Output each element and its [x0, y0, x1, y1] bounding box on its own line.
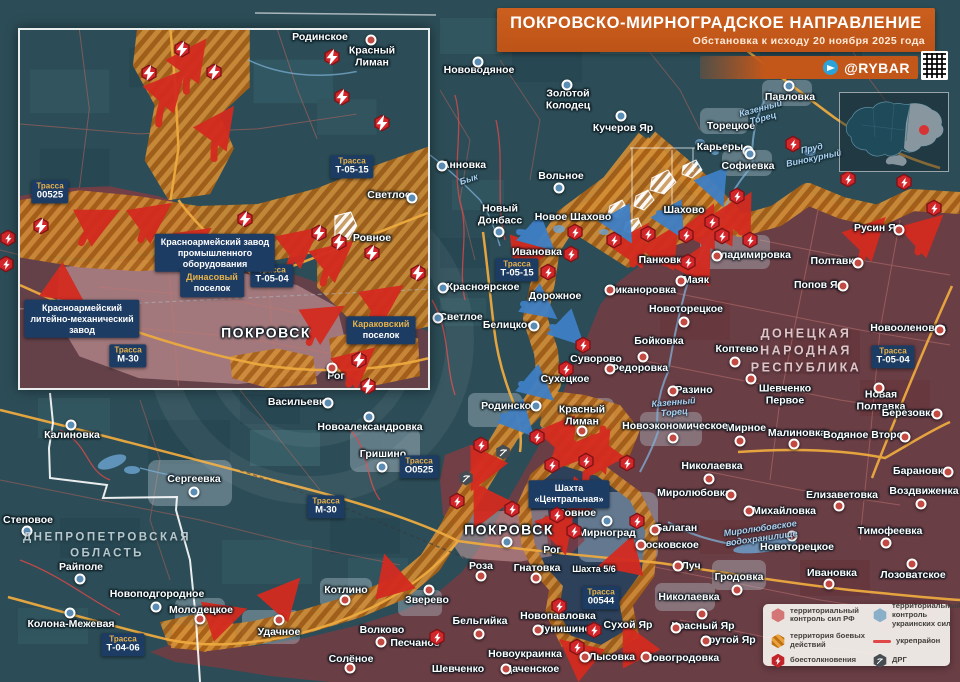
place-label: Даченское — [505, 664, 560, 676]
road-badge: Трасса00544 — [582, 586, 619, 609]
clash-icon — [324, 49, 341, 66]
city-dot — [636, 540, 647, 551]
legend-label: ДРГ — [892, 656, 907, 665]
city-dot — [531, 573, 542, 584]
city-dot — [66, 420, 77, 431]
clash-icon — [206, 64, 223, 81]
place-label: Волково — [360, 625, 405, 637]
road-badge: ТрассаТ-05-04 — [871, 345, 914, 368]
place-label: Воздвиженка — [889, 486, 958, 498]
clash-icon — [896, 174, 913, 191]
clash-icon — [640, 226, 657, 243]
legend-label: территориальный контроль сил РФ — [790, 607, 867, 624]
place-label: ПОКРОВСК — [464, 522, 554, 537]
city-dot — [189, 487, 200, 498]
callout-label: Шахта«Центральная» — [529, 480, 610, 508]
place-label: Кучеров Яр — [593, 123, 653, 135]
clash-icon — [374, 115, 391, 132]
legend-label: территория боевых действий — [790, 632, 867, 649]
place-label: Лысовка — [589, 652, 635, 664]
city-dot — [554, 183, 565, 194]
city-dot — [433, 313, 444, 324]
place-label: Владимировка — [713, 250, 791, 262]
legend-swatch-ua-icon — [873, 608, 887, 622]
clash-icon — [141, 65, 158, 82]
legend-swatch-clash-icon — [771, 654, 785, 668]
title-bar: ПОКРОВСКО-МИРНОГРАДСКОЕ НАПРАВЛЕНИЕ Обст… — [497, 8, 935, 52]
city-dot — [744, 506, 755, 517]
city-dot — [824, 579, 835, 590]
place-label: Березовка — [882, 408, 937, 420]
place-label: Тимофеевка — [858, 526, 923, 538]
place-label: Сергеевка — [167, 474, 220, 486]
clash-icon — [311, 225, 328, 242]
clash-icon — [364, 245, 381, 262]
city-dot — [366, 35, 377, 46]
place-label: Федоровка — [610, 363, 668, 375]
city-dot — [364, 412, 375, 423]
clash-icon — [926, 200, 943, 217]
place-label: Удачное — [258, 627, 301, 639]
city-dot — [502, 537, 513, 548]
city-dot — [376, 637, 387, 648]
legend-label: укрепрайон — [896, 637, 940, 646]
city-dot — [834, 501, 845, 512]
clash-icon — [563, 246, 580, 263]
legend-swatch-drg-icon — [873, 654, 887, 668]
city-dot — [474, 629, 485, 640]
clash-icon — [529, 429, 546, 446]
clash-icon — [551, 598, 568, 615]
city-dot — [679, 317, 690, 328]
war-map-canvas: НововодяноеЗолотой КолодецКучеров ЯрПавл… — [0, 0, 960, 682]
city-dot — [838, 281, 849, 292]
clash-icon — [714, 228, 731, 245]
place-label: Карьеры — [697, 142, 743, 154]
place-label: Новогродовка — [645, 653, 719, 665]
city-dot — [529, 321, 540, 332]
drg-icon — [496, 445, 511, 460]
clash-icon — [449, 493, 466, 510]
drg-icon — [459, 471, 474, 486]
place-label: Новое Шахово — [535, 212, 612, 224]
conflict-area-dot — [919, 125, 929, 135]
city-dot — [274, 615, 285, 626]
road-badge: ТрассаТ-05-15 — [330, 155, 373, 178]
city-dot — [602, 516, 613, 527]
place-label: Софиевка — [721, 161, 774, 173]
clash-icon — [578, 453, 595, 470]
road-badge: ТрассаМ-30 — [307, 495, 344, 518]
callout-label: Красноармейский заводпромышленногооборуд… — [155, 234, 275, 272]
city-dot — [745, 149, 756, 160]
place-label: Золотой Колодец — [546, 88, 590, 111]
inset-map-pokrovsk: РодинскоеКрасный ЛиманСветлоеРовноеПОКРО… — [18, 28, 430, 390]
city-dot — [345, 663, 356, 674]
clash-icon — [619, 455, 636, 472]
place-label: Светлое — [367, 190, 410, 202]
place-label: Родинское — [481, 401, 537, 413]
place-label: Колона-Межевая — [27, 619, 114, 631]
place-label: Дорожное — [529, 291, 582, 303]
legend-item-rf: территориальный контроль сил РФ — [771, 602, 867, 628]
city-dot — [712, 251, 723, 262]
clash-icon — [331, 234, 348, 251]
region-label: ДНЕПРОПЕТРОВСКАЯ ОБЛАСТЬ — [23, 530, 191, 561]
city-dot — [641, 652, 652, 663]
legend-swatch-fort-icon — [873, 640, 891, 643]
city-dot — [732, 585, 743, 596]
clash-icon — [429, 629, 446, 646]
city-dot — [616, 111, 627, 122]
place-label: Михайловка — [752, 506, 816, 518]
place-label: Красный Лиман — [559, 404, 605, 427]
qr-code — [921, 51, 948, 80]
place-label: Новоподгородное — [110, 589, 205, 601]
place-label: Зверево — [405, 595, 449, 607]
clash-icon — [704, 214, 721, 231]
place-label: Анновка — [442, 160, 486, 172]
city-dot — [476, 571, 487, 582]
clash-icon — [729, 188, 746, 205]
clash-icon — [174, 41, 191, 58]
legend-item-ua: территориальный контроль украинских сил — [873, 602, 960, 628]
city-dot — [494, 227, 505, 238]
city-dot — [726, 490, 737, 501]
telegram-icon — [823, 60, 838, 75]
road-badge: ТрассаО0525 — [400, 455, 439, 478]
callout-label: Динасовыйпоселок — [180, 269, 244, 297]
place-label: Гродовка — [715, 572, 764, 584]
river-label: Миролюбовское водохранилище — [723, 519, 799, 549]
city-dot — [735, 436, 746, 447]
city-dot — [916, 499, 927, 510]
city-dot — [676, 276, 687, 287]
city-dot — [730, 357, 741, 368]
legend-item-fort: укрепрайон — [873, 632, 960, 649]
map-title: ПОКРОВСКО-МИРНОГРАДСКОЕ НАПРАВЛЕНИЕ — [507, 14, 925, 33]
clash-icon — [0, 256, 15, 273]
city-dot — [874, 383, 885, 394]
river-label: Бык — [459, 172, 480, 187]
city-dot — [697, 609, 708, 620]
map-subtitle: Обстановка к исходу 20 ноября 2025 года — [507, 35, 925, 47]
city-dot — [65, 608, 76, 619]
road-badge: ТрассаМ-30 — [109, 344, 146, 367]
callout-label: Красноармейскийлитейно-механическийзавод — [24, 300, 139, 338]
city-dot — [789, 439, 800, 450]
city-dot — [605, 364, 616, 375]
road-badge: Трасса00525 — [31, 180, 68, 203]
place-label: Новый Донбасс — [478, 203, 522, 226]
city-dot — [650, 525, 661, 536]
place-label: Барановка — [893, 466, 949, 478]
legend-label: территориальный контроль украинских сил — [892, 602, 960, 628]
place-label: Ивановка — [807, 568, 857, 580]
road-badge: ТрассаТ-05-15 — [495, 258, 538, 281]
city-dot — [437, 161, 448, 172]
city-dot — [195, 614, 206, 625]
city-dot — [671, 623, 682, 634]
city-dot — [151, 602, 162, 613]
city-dot — [935, 325, 946, 336]
place-label: ПОКРОВСК — [221, 325, 311, 340]
place-label: Чунишино — [537, 624, 591, 636]
clash-icon — [567, 224, 584, 241]
place-label: Красный Лиман — [349, 45, 395, 68]
place-label: Бойковка — [634, 336, 684, 348]
city-dot — [638, 352, 649, 363]
place-label: Шевченко — [432, 664, 484, 676]
place-label: Маяк — [683, 275, 709, 287]
region-label: ДОНЕЦКАЯ НАРОДНАЯ РЕСПУБЛИКА — [751, 326, 862, 377]
place-label: Никаноровка — [608, 285, 676, 297]
city-dot — [673, 561, 684, 572]
river-label: Казенный Торец — [651, 396, 697, 420]
place-label: Рог — [543, 545, 561, 557]
place-label: Балаган — [655, 523, 697, 535]
place-label: Ровное — [353, 233, 391, 245]
place-label: Новоторецкое — [649, 304, 723, 316]
city-dot — [531, 401, 542, 412]
place-label: Панковка — [639, 255, 688, 267]
place-label: Малиновка — [768, 428, 826, 440]
place-label: Бельгийка — [453, 616, 508, 628]
place-label: Калиновка — [44, 430, 100, 442]
clash-icon — [678, 227, 695, 244]
place-label: Райполе — [59, 562, 103, 574]
place-label: Мирноград — [578, 528, 636, 540]
place-label: Водяное Второе — [823, 430, 909, 442]
legend: территориальный контроль сил РФтерритори… — [763, 604, 950, 666]
clash-icon — [544, 457, 561, 474]
clash-icon — [549, 507, 566, 524]
place-label: Николаевка — [681, 461, 742, 473]
place-label: Новоторецкое — [760, 542, 834, 554]
legend-label: боестолкновения — [790, 656, 856, 665]
city-dot — [327, 363, 338, 374]
city-dot — [605, 285, 616, 296]
clash-icon — [566, 523, 583, 540]
city-dot — [704, 474, 715, 485]
place-label: Вольное — [538, 171, 583, 183]
place-label: Новоалександровка — [317, 422, 422, 434]
place-label: Шахово — [663, 205, 704, 217]
place-label: Луч — [681, 561, 700, 573]
callout-label: Караковскийпоселок — [347, 316, 416, 344]
city-dot — [853, 258, 864, 269]
place-label: Ивановка — [512, 247, 562, 259]
city-dot — [668, 433, 679, 444]
city-dot — [377, 462, 388, 473]
brand-bar: @RYBAR — [700, 56, 918, 79]
clash-icon — [473, 437, 490, 454]
place-label: Красноярское — [447, 282, 520, 294]
city-dot — [424, 585, 435, 596]
place-label: Новоукраинка — [488, 649, 562, 661]
clash-icon — [558, 361, 575, 378]
legend-swatch-combat-icon — [771, 634, 785, 648]
clash-icon — [586, 622, 603, 639]
place-label: Светлое — [439, 312, 482, 324]
city-dot — [533, 625, 544, 636]
place-label: Шахта 5/6 — [572, 565, 615, 575]
place-label: Елизаветовка — [806, 490, 878, 502]
place-label: Шевченко Первое — [759, 383, 811, 406]
inset-labels-layer: РодинскоеКрасный ЛиманСветлоеРовноеПОКРО… — [20, 30, 428, 388]
place-label: Родинское — [292, 32, 348, 44]
clash-icon — [410, 265, 427, 282]
city-dot — [894, 225, 905, 236]
river-label: Казенный Торец — [738, 99, 786, 130]
ukraine-minimap — [839, 92, 949, 172]
city-dot — [900, 432, 911, 443]
city-dot — [784, 81, 795, 92]
clash-icon — [606, 232, 623, 249]
clash-icon — [742, 232, 759, 249]
legend-item-drg: ДРГ — [873, 654, 960, 668]
legend-item-combat: территория боевых действий — [771, 632, 867, 649]
place-label: Миролюбовка — [657, 488, 731, 500]
legend-item-clash: боестолкновения — [771, 654, 867, 668]
city-dot — [668, 386, 679, 397]
place-label: Сухой Яр — [604, 620, 653, 632]
city-dot — [881, 538, 892, 549]
brand-name: @RYBAR — [844, 60, 910, 76]
clash-icon — [334, 89, 351, 106]
city-dot — [562, 80, 573, 91]
city-dot — [580, 652, 591, 663]
clash-icon — [680, 254, 697, 271]
city-dot — [932, 409, 943, 420]
place-label: Васильевка — [268, 397, 330, 409]
city-dot — [473, 57, 484, 68]
city-dot — [340, 595, 351, 606]
legend-swatch-rf-icon — [771, 608, 785, 622]
city-dot — [943, 467, 954, 478]
city-dot — [577, 426, 588, 437]
place-label: Белицкое — [483, 320, 533, 332]
city-dot — [323, 398, 334, 409]
city-dot — [907, 559, 918, 570]
city-dot — [501, 664, 512, 675]
clash-icon — [504, 501, 521, 518]
clash-icon — [540, 264, 557, 281]
place-label: Мирное — [726, 423, 766, 435]
place-label: Новоэкономическое — [622, 421, 728, 433]
clash-icon — [840, 171, 857, 188]
clash-icon — [0, 230, 17, 247]
place-label: Николаевка — [658, 592, 719, 604]
city-dot — [701, 636, 712, 647]
clash-icon — [237, 211, 254, 228]
clash-icon — [575, 337, 592, 354]
clash-icon — [33, 218, 50, 235]
city-dot — [438, 283, 449, 294]
city-dot — [407, 193, 418, 204]
clash-icon — [629, 513, 646, 530]
place-label: Суворово — [570, 354, 622, 366]
city-dot — [75, 574, 86, 585]
place-label: Лозоватское — [880, 570, 945, 582]
road-badge: ТрассаТ-04-06 — [101, 633, 144, 656]
clash-icon — [351, 352, 368, 369]
